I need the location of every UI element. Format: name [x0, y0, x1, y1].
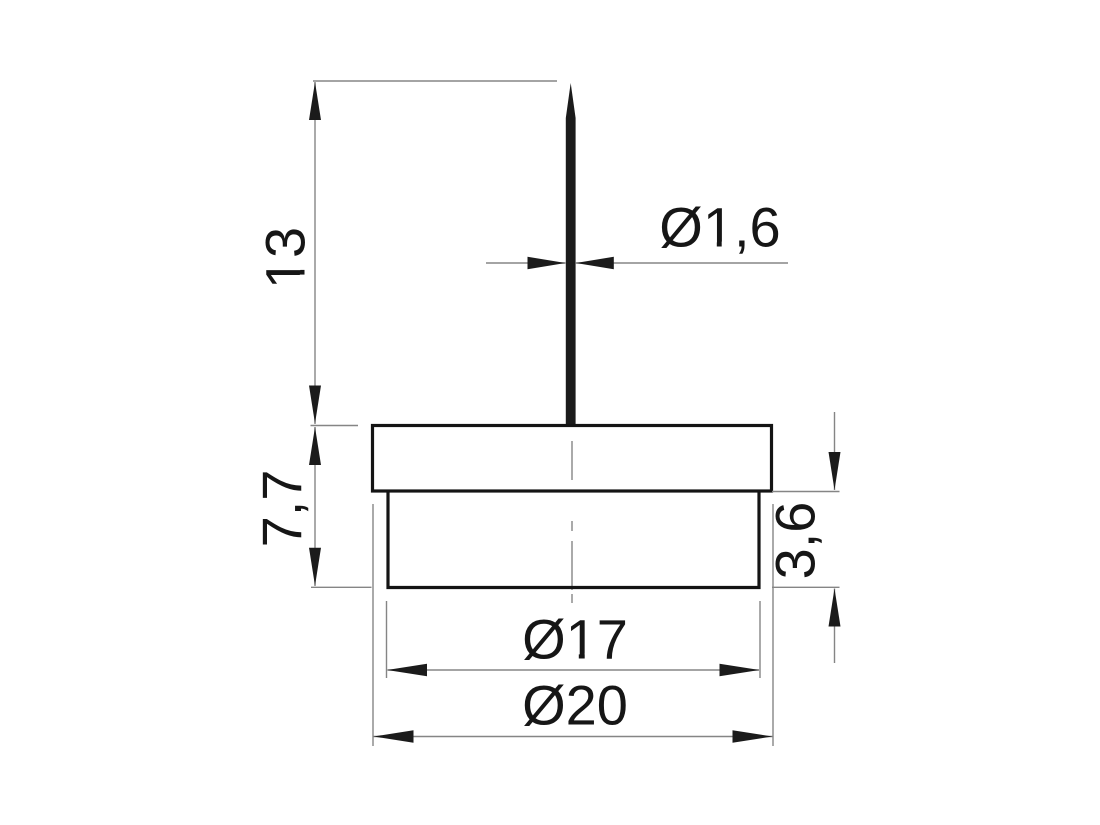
- svg-text:7,7: 7,7: [250, 470, 313, 548]
- svg-text:Ø17: Ø17: [522, 608, 628, 671]
- svg-text:13: 13: [254, 227, 317, 289]
- svg-text:Ø1,6: Ø1,6: [659, 196, 780, 259]
- svg-text:Ø20: Ø20: [522, 674, 628, 737]
